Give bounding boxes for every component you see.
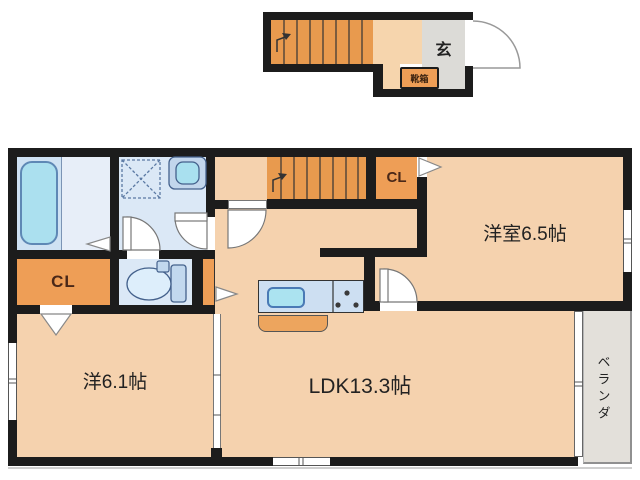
- closet2-door-opening: [417, 157, 427, 177]
- entry-door-opening: [465, 20, 473, 66]
- room61-label: 洋6.1帖: [17, 367, 213, 393]
- main-stairs: [267, 157, 366, 199]
- room65-label: 洋室6.5帖: [427, 219, 623, 245]
- storage-strip: [203, 259, 215, 305]
- entry-door-swing: [473, 21, 520, 68]
- sliding-partition: [213, 314, 221, 448]
- under-wall-shadow: [8, 467, 632, 469]
- main-wall-bottom-b: [330, 457, 578, 466]
- bath-wash-divider: [110, 157, 119, 250]
- window-room65-right: [623, 210, 632, 272]
- upper-wall-right-bottom: [465, 66, 473, 97]
- ldk-room65-wall-b: [417, 301, 632, 311]
- stairs-right-wall: [366, 148, 376, 209]
- room65-door-opening: [380, 301, 417, 311]
- closet2-label: CL: [376, 166, 417, 188]
- bathroom: [62, 157, 110, 250]
- upper-wall-left: [263, 12, 271, 72]
- washroom-door-opening: [206, 217, 215, 250]
- veranda-sliding-window: [574, 311, 583, 457]
- partition-bottom-nub: [211, 448, 222, 457]
- bathtub: [20, 161, 58, 245]
- washroom: [119, 157, 206, 250]
- stair-hall-door-leaf: [228, 200, 267, 209]
- veranda-label: ベランダ: [592, 334, 614, 444]
- ldk-room65-wall-a: [364, 301, 380, 311]
- room65-left-wall: [417, 177, 427, 257]
- hall-stub-wall: [215, 200, 228, 209]
- stairs-bottom-wall: [267, 199, 427, 209]
- upper-stairs: [271, 20, 373, 64]
- upper-wall-right-top: [465, 12, 473, 20]
- wash-right-wall-a: [206, 148, 215, 217]
- shoe-box-label: 靴箱: [400, 70, 439, 86]
- upper-wall-bottom: [373, 89, 473, 97]
- wash-right-wall-b: [206, 250, 215, 259]
- upper-wall-top: [263, 12, 473, 20]
- upper-wall-bottom-stairs: [263, 64, 381, 72]
- main-wall-bottom-a: [8, 457, 273, 466]
- toilet-door-opening: [127, 250, 159, 259]
- row2-bottom-a: [8, 305, 40, 314]
- toilet-room: [119, 259, 192, 305]
- closet1-label: CL: [17, 270, 110, 294]
- row2-bottom-b: [72, 305, 215, 314]
- window-room61-left: [8, 343, 17, 420]
- entrance-label: 玄: [422, 37, 465, 59]
- upper-landing-lower: [383, 64, 400, 89]
- main-wall-top: [8, 148, 632, 157]
- floor-plan: 玄 靴箱 洋室6: [0, 0, 640, 480]
- kitchen-sink: [267, 287, 305, 308]
- window-ldk-bottom: [273, 457, 330, 466]
- closet1-door-opening: [40, 305, 72, 314]
- kitchen-cabinet: [258, 315, 328, 332]
- ldk-label: LDK13.3帖: [240, 371, 480, 399]
- main-wall-right-a: [623, 148, 632, 210]
- upper-landing: [373, 20, 422, 64]
